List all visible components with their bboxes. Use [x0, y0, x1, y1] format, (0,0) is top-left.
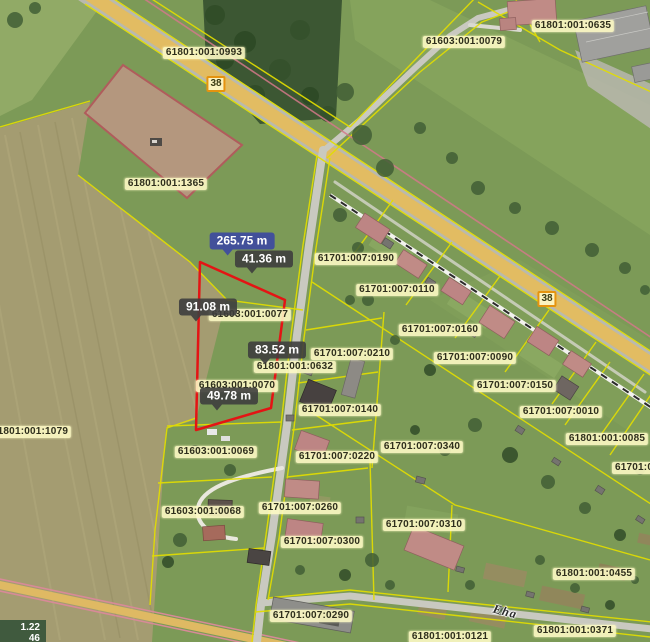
- parcel-label[interactable]: 61801:001:0993: [163, 47, 245, 59]
- parcel-label[interactable]: 61701:007:0290: [270, 610, 352, 622]
- parcel-label[interactable]: 61701:007:0220: [296, 451, 378, 463]
- parcel-label[interactable]: 61701:007:0110: [356, 284, 438, 296]
- parcel-label[interactable]: 61801:001:0121: [409, 631, 491, 642]
- measure-segment-tooltip: 41.36 m: [235, 251, 293, 268]
- parcel-label[interactable]: 61801:001:1079: [0, 426, 71, 438]
- parcel-label[interactable]: 61701:007:0300: [281, 536, 363, 548]
- parcel-label[interactable]: 61603:001:0079: [423, 36, 505, 48]
- road-number-badge: 38: [537, 291, 556, 307]
- coordinate-line-2: 46: [0, 633, 40, 642]
- parcel-label[interactable]: 61701:007:0210: [311, 348, 393, 360]
- parcel-label[interactable]: 61701:007:0190: [315, 253, 397, 265]
- parcel-label[interactable]: 61701:007:0160: [399, 324, 481, 336]
- parcel-label[interactable]: 61801:001:0371: [534, 625, 616, 637]
- measure-total-tooltip: 265.75 m: [210, 233, 275, 250]
- parcel-label[interactable]: 61701:007:0150: [474, 380, 556, 392]
- measure-segment-tooltip: 91.08 m: [179, 299, 237, 316]
- parcel-label[interactable]: 61801:001:0085: [566, 433, 648, 445]
- measure-segment-tooltip: 49.78 m: [200, 388, 258, 405]
- parcel-label[interactable]: 61603:001:0069: [175, 446, 257, 458]
- road-number-badge: 38: [206, 76, 225, 92]
- parcel-label[interactable]: 61701:007:0340: [381, 441, 463, 453]
- measure-segment-tooltip: 83.52 m: [248, 342, 306, 359]
- parcel-label[interactable]: 61701:007:0140: [299, 404, 381, 416]
- parcel-label[interactable]: 61701:00: [612, 462, 650, 474]
- map-canvas[interactable]: 61801:001:0993 61603:001:0079 61801:001:…: [0, 0, 650, 642]
- parcel-label[interactable]: 61701:007:0310: [383, 519, 465, 531]
- parcel-label[interactable]: 61603:001:0068: [162, 506, 244, 518]
- coordinate-readout: 1.22 46: [0, 620, 46, 642]
- parcel-label[interactable]: 61801:001:0455: [553, 568, 635, 580]
- parcel-label[interactable]: 61701:007:0010: [520, 406, 602, 418]
- parcel-label[interactable]: 61701:007:0090: [434, 352, 516, 364]
- parcel-label[interactable]: 61701:007:0260: [259, 502, 341, 514]
- coordinate-line-1: 1.22: [0, 622, 40, 633]
- parcel-label[interactable]: 61801:001:1365: [125, 178, 207, 190]
- parcel-label[interactable]: 61801:001:0635: [532, 20, 614, 32]
